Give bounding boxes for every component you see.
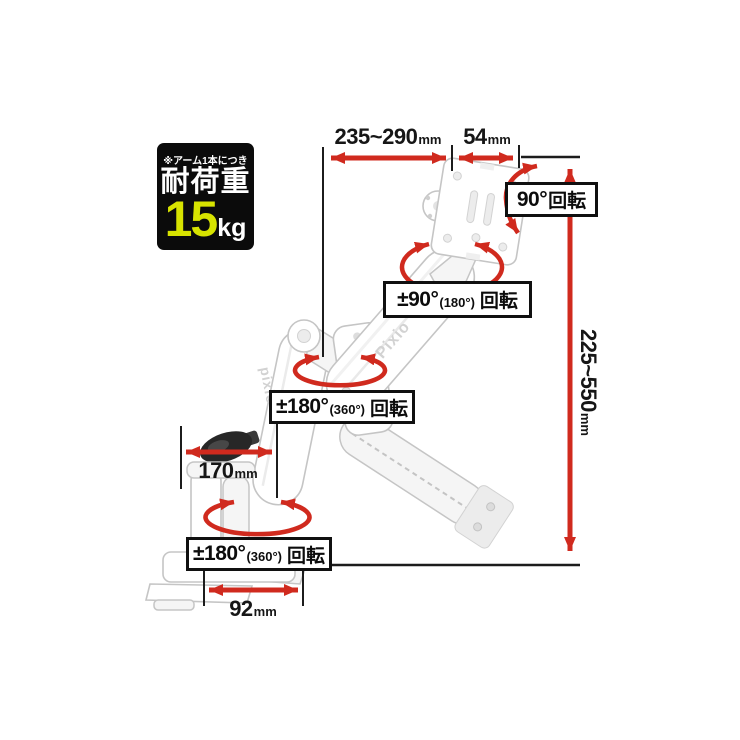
callout-head-swivel-paren: (180°)	[439, 290, 475, 310]
badge-note: ※アーム1本につき	[163, 152, 247, 167]
callout-elbow-swivel: ±180° (360°) 回転	[269, 390, 415, 424]
monitor-arm-spec-diagram: pixio	[0, 0, 740, 740]
dimension-label-92-unit: mm	[254, 604, 277, 619]
badge-unit: kg	[217, 214, 246, 243]
callout-head-pivot-angle: 90°	[517, 188, 547, 212]
dimension-label-92: 92mm	[193, 596, 313, 622]
callout-elbow-swivel-suffix: 回転	[370, 394, 408, 421]
dimension-label-arm-reach: 235~290mm	[308, 124, 468, 150]
callout-head-swivel-suffix: 回転	[480, 286, 518, 313]
dimension-label-170-value: 170	[198, 458, 233, 483]
callout-base-swivel-angle: ±180°	[193, 542, 245, 566]
callout-head-pivot-suffix: 回転	[548, 186, 586, 213]
dimension-label-height-range-unit: mm	[578, 413, 593, 436]
load-capacity-badge: ※アーム1本につき 耐荷重 15 kg	[157, 143, 254, 250]
diagram-canvas: pixio	[0, 0, 740, 740]
badge-value: 15	[165, 196, 217, 244]
dimension-label-92-value: 92	[229, 596, 252, 621]
dimension-label-height-range: 225~550mm	[575, 300, 601, 465]
callout-base-swivel: ±180° (360°) 回転	[186, 537, 332, 571]
dimension-label-170: 170mm	[168, 458, 288, 484]
callout-elbow-swivel-angle: ±180°	[276, 395, 328, 419]
dimension-label-height-range-value: 225~550	[576, 329, 601, 412]
callout-head-swivel-angle: ±90°	[397, 288, 438, 312]
dimension-label-170-unit: mm	[235, 466, 258, 481]
badge-value-row: 15 kg	[165, 196, 247, 244]
callout-head-pivot: 90° 回転	[505, 182, 598, 217]
dimension-label-arm-reach-unit: mm	[418, 132, 441, 147]
callout-base-swivel-paren: (360°)	[246, 544, 282, 564]
dimension-label-head-depth-unit: mm	[488, 132, 511, 147]
dimension-label-head-depth-value: 54	[463, 124, 486, 149]
callout-elbow-swivel-paren: (360°)	[329, 397, 365, 417]
dimension-label-head-depth: 54mm	[447, 124, 527, 150]
callout-head-swivel: ±90° (180°) 回転	[383, 281, 532, 318]
callout-base-swivel-suffix: 回転	[287, 541, 325, 568]
dimension-label-arm-reach-value: 235~290	[335, 124, 418, 149]
